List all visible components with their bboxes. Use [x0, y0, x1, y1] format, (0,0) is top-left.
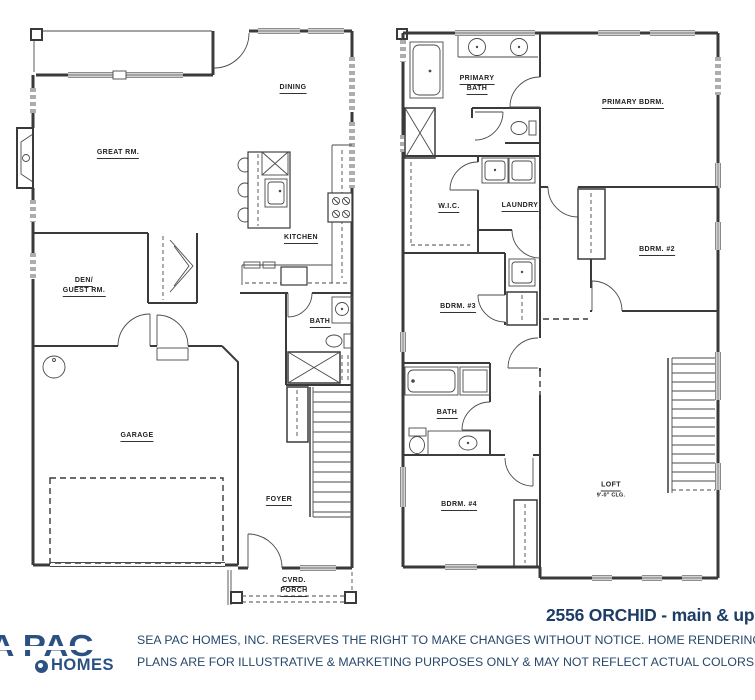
porch-post — [231, 592, 242, 603]
hall-vanity — [509, 259, 535, 286]
room-label-bdrm3: BDRM. #3 — [440, 303, 476, 313]
toilet-icon — [511, 122, 527, 135]
room-label-bdrm2: BDRM. #2 — [639, 246, 675, 256]
disclaimer-line-1: SEA PAC HOMES, INC. RESERVES THE RIGHT T… — [137, 629, 755, 651]
bdrm4-closet — [514, 500, 537, 567]
range-icon — [328, 193, 352, 222]
fireplace — [17, 128, 33, 188]
kitchen-fixtures — [238, 145, 352, 285]
disclaimer-line-2: PLANS ARE FOR ILLUSTRATIVE & MARKETING P… — [137, 651, 755, 673]
room-label-cvrd-porch: CVRD.PORCH — [280, 577, 307, 597]
logo-text-homes: HOMES — [51, 656, 114, 675]
room-label-great-rm: GREAT RM. — [97, 149, 139, 159]
water-heater-icon — [43, 356, 65, 378]
floor-plan-sheet: DINING GREAT RM. KITCHEN DEN/GUEST RM. B… — [0, 0, 755, 700]
windows-main — [31, 29, 354, 570]
room-label-garage: GARAGE — [120, 432, 153, 442]
disclaimer-text: SEA PAC HOMES, INC. RESERVES THE RIGHT T… — [137, 629, 755, 673]
room-label-bath-main: BATH — [310, 318, 331, 328]
room-label-loft: LOFT9'-0" CLG. — [597, 482, 626, 501]
garage-door — [43, 356, 225, 567]
logo-stripe — [0, 646, 113, 650]
room-label-dining: DINING — [280, 84, 307, 94]
room-label-den-guest: DEN/GUEST RM. — [63, 277, 106, 297]
fridge-icon — [281, 267, 307, 285]
main-floor-plan — [17, 29, 356, 605]
tub-icon — [410, 42, 443, 98]
plan-title: 2556 ORCHID - main & upper — [546, 605, 755, 629]
room-label-primary-bath: PRIMARYBATH — [460, 75, 495, 95]
doors-upper — [450, 77, 622, 486]
logo-globe-icon — [35, 660, 48, 673]
room-label-laundry: LAUNDRY — [502, 202, 539, 212]
bath-fixtures-main — [288, 297, 352, 383]
porch-post — [345, 592, 356, 603]
toilet-icon — [326, 335, 342, 347]
toilet-icon — [409, 428, 426, 436]
room-label-wic: W.I.C. — [438, 203, 459, 213]
room-label-kitchen: KITCHEN — [284, 234, 318, 244]
bdrm2-closet — [578, 189, 605, 259]
stairs-upper — [668, 358, 715, 493]
exterior-walls-main — [31, 29, 352, 568]
stairs-main — [287, 387, 352, 517]
room-label-foyer: FOYER — [266, 496, 292, 506]
room-label-bdrm4: BDRM. #4 — [441, 501, 477, 511]
room-label-primary-bdrm: PRIMARY BDRM. — [602, 99, 664, 109]
room-label-bath-upper: BATH — [437, 409, 458, 419]
